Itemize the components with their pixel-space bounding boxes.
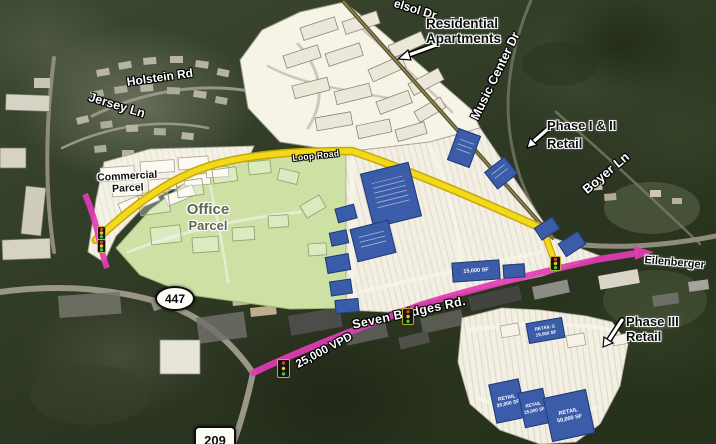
- annotation-phase-1-2-retail: Phase I & II Retail: [547, 117, 616, 153]
- building-pad-15000: 15,000 SF: [451, 259, 500, 282]
- building-retail-50000: RETAIL 50,000 SF: [543, 389, 595, 442]
- building-pad: [334, 298, 359, 314]
- annotation-phase-3-retail: Phase III Retail: [626, 315, 679, 344]
- annotation-line: Office: [180, 202, 236, 219]
- aerial-site-plan-map: elsol Dr Music Center Dr Holstein Rd Jer…: [0, 0, 716, 444]
- annotation-residential-apartments: Residential Apartments: [426, 16, 501, 46]
- annotation-line: Apartments: [426, 31, 501, 46]
- annotation-line: Retail: [547, 135, 616, 153]
- annotation-line: Phase III: [626, 315, 679, 330]
- route-shield-447: 447: [155, 286, 195, 311]
- traffic-light-icon: [97, 239, 106, 253]
- building-pad: [329, 279, 353, 297]
- route-shield-209: 209: [194, 426, 236, 444]
- annotation-commercial-parcel: Commercial Parcel: [94, 170, 161, 197]
- traffic-light-icon: [550, 256, 561, 271]
- traffic-light-icon: [97, 226, 106, 240]
- annotation-line: Retail: [626, 330, 679, 345]
- annotation-line: Parcel: [180, 219, 236, 234]
- traffic-light-icon: [277, 359, 290, 378]
- traffic-light-icon: [402, 308, 414, 325]
- map-base-svg: [0, 0, 716, 444]
- annotation-line: Phase I & II: [547, 117, 616, 135]
- annotation-line: Residential: [426, 16, 501, 31]
- building-sf-label: 15,000 SF: [463, 267, 489, 276]
- building-pad: [503, 263, 526, 279]
- annotation-office-parcel: Office Parcel: [180, 202, 236, 233]
